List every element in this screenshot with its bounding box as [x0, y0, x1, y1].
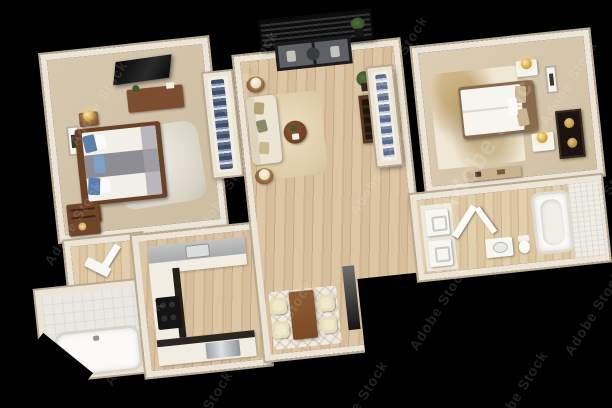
bed: [458, 79, 539, 139]
table-tray: [292, 133, 300, 140]
patio-table: [306, 47, 320, 61]
burner: [160, 302, 167, 309]
dryer: [428, 239, 454, 267]
dresser: [126, 84, 184, 113]
desk-shelf: [71, 207, 95, 211]
accent-dark-panel: [342, 265, 361, 330]
plan-notch: [357, 271, 446, 369]
dining-chair: [271, 320, 290, 339]
room-living-dining: [233, 39, 430, 361]
dining-chair: [317, 294, 336, 313]
balcony-planter: [354, 28, 364, 38]
pillow-white: [507, 97, 518, 116]
room-left-bedroom: [40, 37, 227, 242]
tub-faucet: [93, 335, 99, 341]
patio-chair: [286, 50, 296, 62]
room-right-bedroom: [412, 29, 604, 193]
pillow-white: [100, 179, 110, 193]
burner: [170, 314, 177, 321]
decor-gold-bowl: [564, 118, 575, 129]
sofa-pillow: [259, 142, 269, 154]
burner: [161, 315, 168, 322]
plant-pot: [361, 83, 369, 92]
room-kitchen: [132, 223, 272, 377]
kitchen-sink: [185, 243, 210, 258]
dining-chair: [269, 297, 288, 316]
open-door: [475, 206, 497, 234]
bathtub: [530, 189, 574, 255]
tiled-wall: [568, 181, 608, 258]
watermark-text: Adobe Stock: [486, 348, 551, 408]
apartment-floorplan: [8, 0, 602, 386]
table-plant: [290, 124, 298, 132]
laundry-closet: [420, 203, 458, 272]
dresser-items: [497, 169, 505, 175]
writing-desk: [66, 202, 101, 237]
bathroom-vanity: [485, 237, 514, 259]
vanity-sink: [492, 241, 508, 254]
hanging-clothes: [211, 79, 233, 170]
wall-art: [544, 65, 559, 94]
pillow-blue: [88, 178, 101, 195]
bed: [74, 121, 168, 207]
dishwasher: [205, 340, 240, 359]
hanging-clothes: [375, 74, 395, 159]
plant-on-dresser: [132, 85, 140, 93]
washer: [425, 208, 451, 236]
low-dresser: [467, 165, 522, 182]
sofa-pillow: [254, 102, 265, 115]
tub-basin: [539, 198, 566, 246]
dresser-items: [475, 172, 481, 178]
dining-chair: [319, 315, 338, 334]
decor-on-dresser: [166, 82, 175, 89]
tv-panel: [113, 54, 171, 85]
patio-chair: [330, 46, 340, 58]
dining-table: [288, 290, 318, 340]
floorplan-scene: Adobe StockAdobe StockAdobe StockAdobe S…: [0, 0, 612, 408]
open-door: [452, 204, 477, 238]
room-left-bathroom: [35, 280, 150, 383]
desk-shelf: [71, 215, 95, 219]
desk-lamp: [78, 222, 87, 231]
room-right-bathroom: [410, 175, 610, 281]
decor-gold-bowl: [567, 137, 578, 148]
balcony: [258, 8, 373, 73]
toilet-bowl: [518, 240, 530, 254]
burner: [169, 301, 176, 308]
pillow-lightblue: [93, 155, 106, 174]
pillow-tan: [516, 108, 530, 127]
dryer-door: [435, 246, 451, 262]
washer-door: [431, 215, 447, 231]
media-console-dark: [555, 109, 586, 159]
sofa-pillow: [256, 119, 269, 133]
stove: [155, 296, 182, 330]
toilet: [517, 235, 532, 254]
